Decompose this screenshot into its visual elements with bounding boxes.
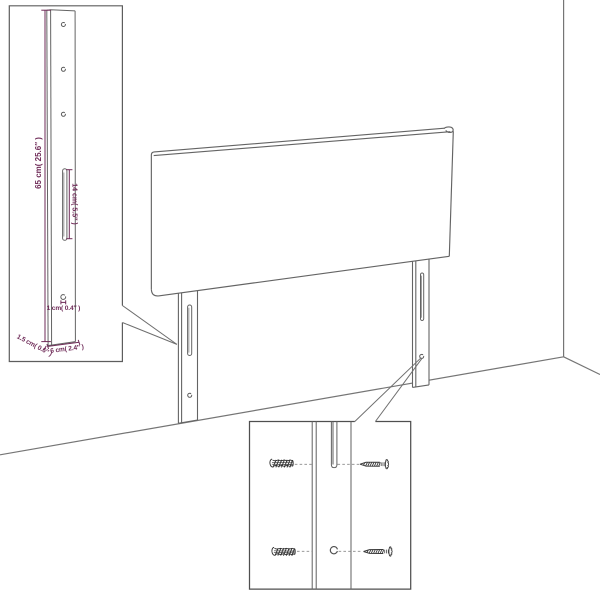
svg-text:14 cm( 5.5″ ): 14 cm( 5.5″ ): [70, 183, 77, 224]
svg-text:1 cm( 0.4″ ): 1 cm( 0.4″ ): [47, 305, 81, 312]
svg-text:65 cm( 25.6″ ): 65 cm( 25.6″ ): [34, 137, 43, 189]
